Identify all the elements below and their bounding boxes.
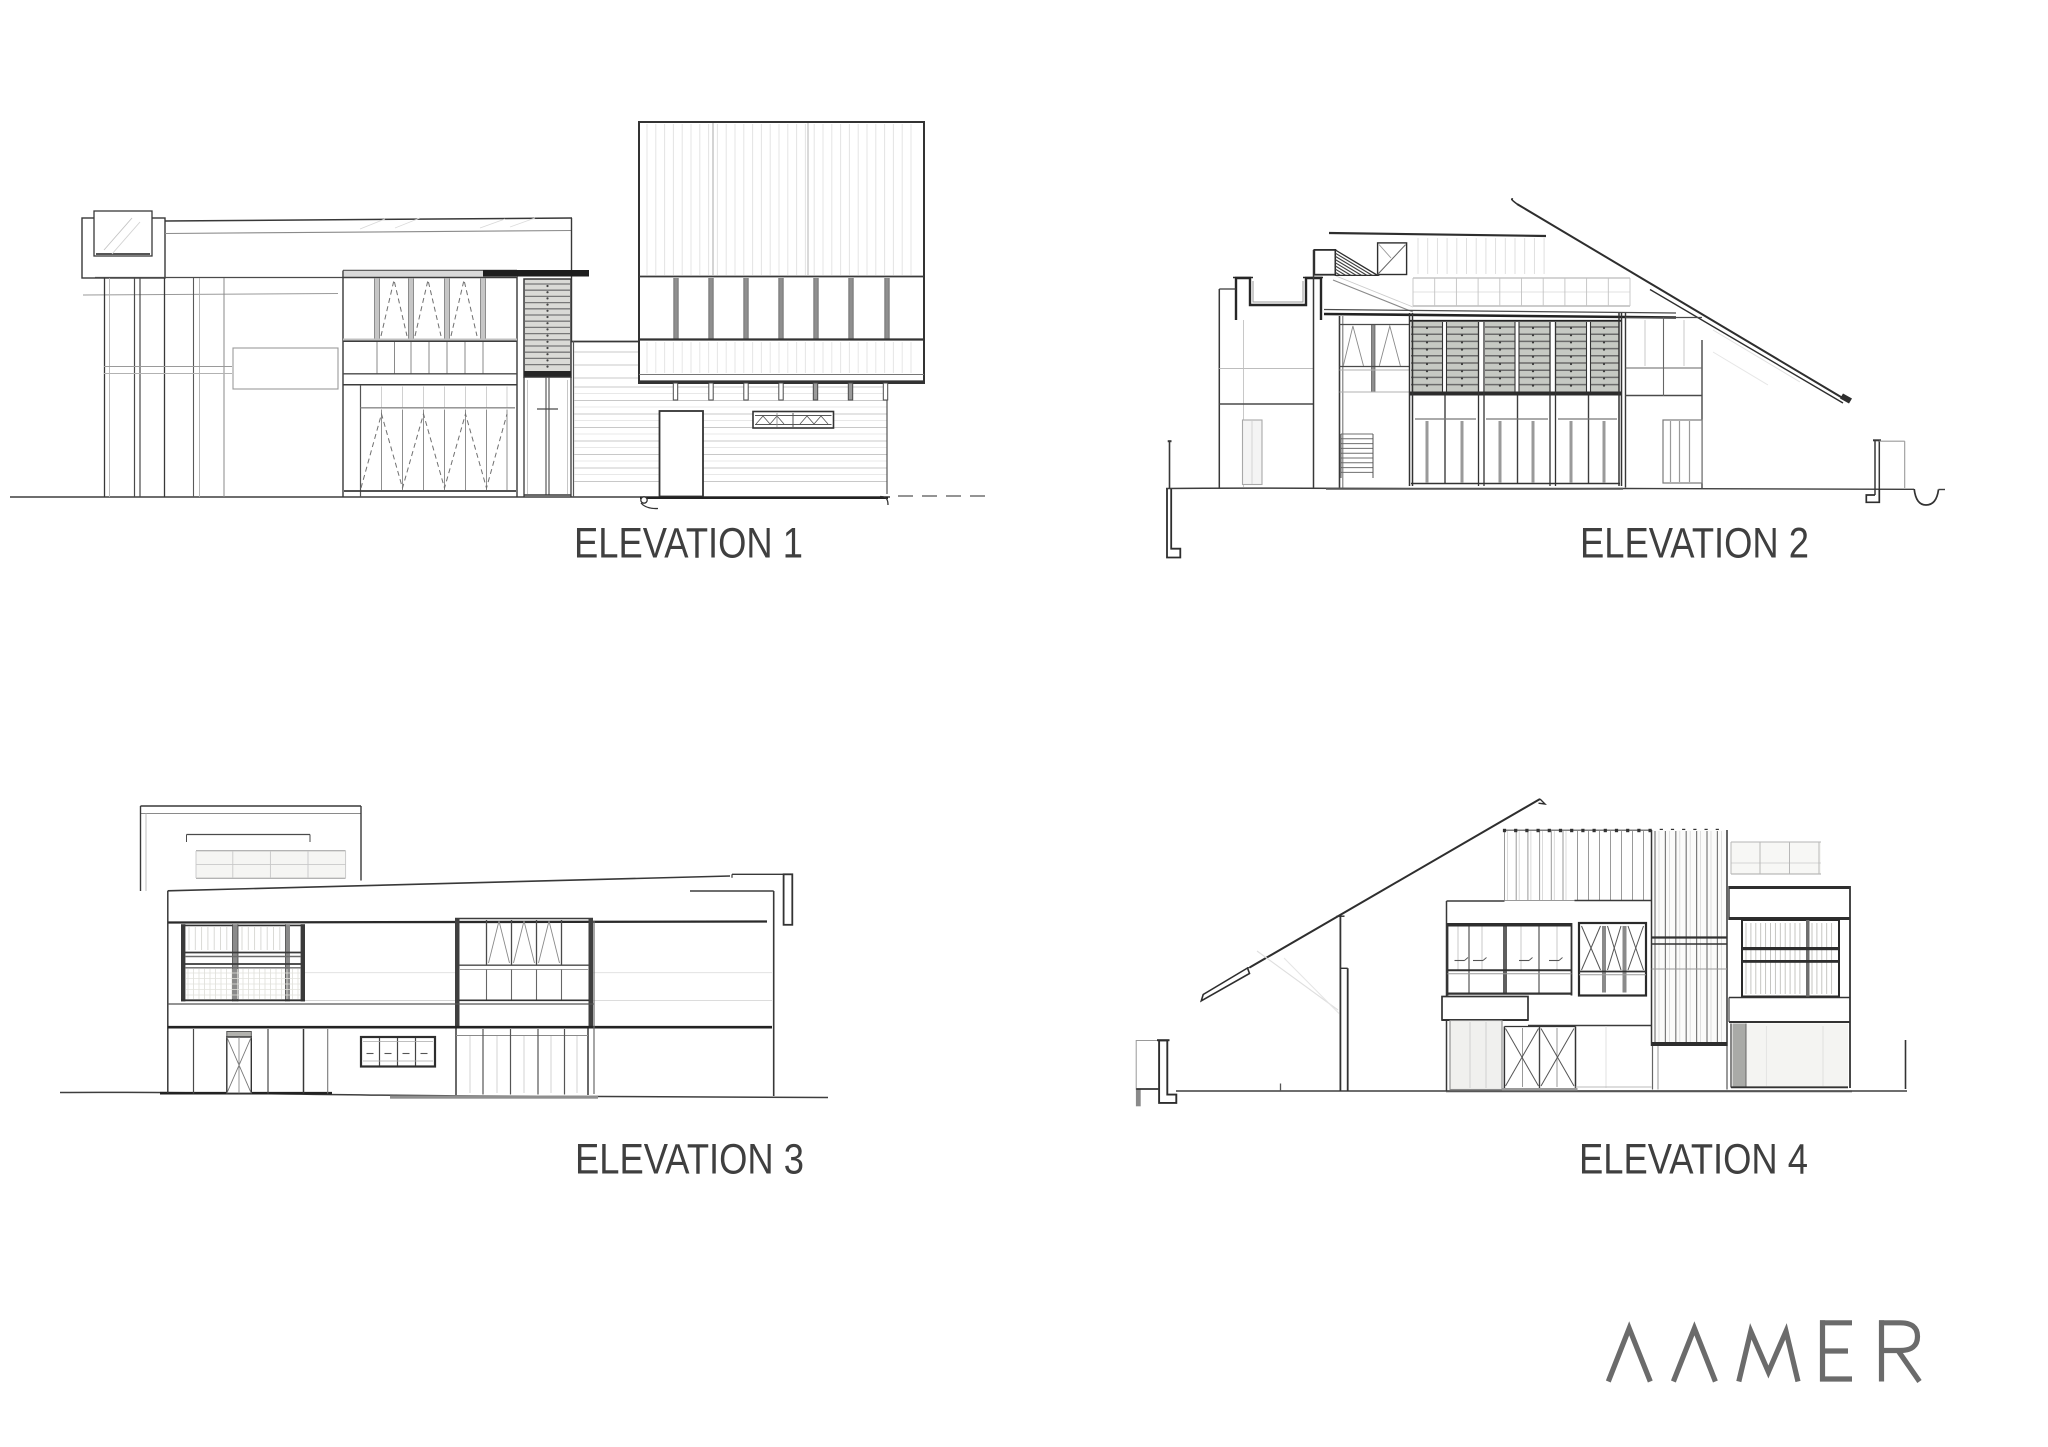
svg-text:ELEVATION 2: ELEVATION 2	[1580, 520, 1809, 568]
svg-text:ELEVATION 1: ELEVATION 1	[574, 520, 803, 568]
svg-text:ELEVATION 3: ELEVATION 3	[575, 1136, 804, 1184]
svg-text:ELEVATION 4: ELEVATION 4	[1579, 1136, 1808, 1184]
